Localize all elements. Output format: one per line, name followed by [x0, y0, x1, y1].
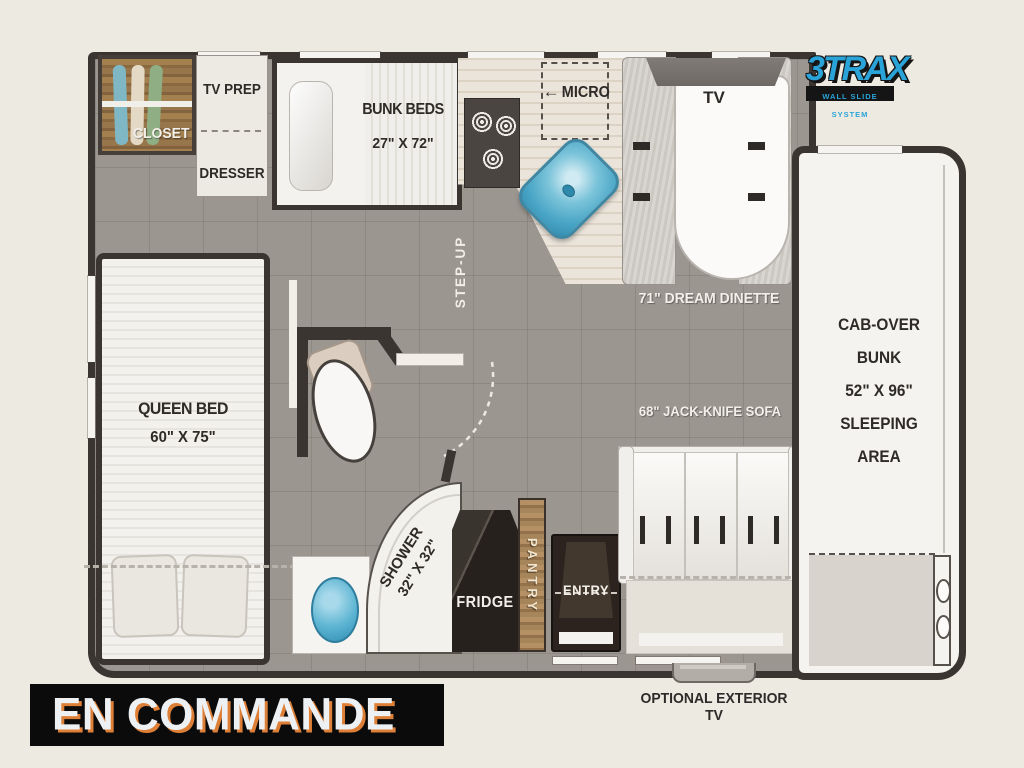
tv-prep-label: TV PREP: [186, 82, 279, 98]
pantry-label: PANTRY: [518, 499, 546, 653]
seat-belt-icon: [748, 142, 765, 150]
seat-belt-icon: [633, 142, 650, 150]
cab-body: CAB-OVER BUNK 52" X 96" SLEEPING AREA: [792, 146, 966, 680]
step-oval-icon: [936, 615, 951, 639]
exterior-tv-mount: [672, 663, 756, 683]
sink-drain-icon: [560, 182, 578, 200]
bedroom-tv-wall: [289, 280, 297, 408]
micro-label: MICRO: [561, 84, 609, 102]
closet: CLOSET: [98, 55, 196, 155]
slide-out-line: [620, 576, 800, 579]
micro-arrow-icon: ←: [543, 82, 560, 101]
seat-belt-icon: [666, 516, 671, 544]
step-up-label: STEP-UP: [453, 207, 473, 337]
seat-belt-icon: [748, 193, 765, 201]
window-gap: [88, 378, 95, 438]
stove: [464, 98, 520, 188]
status-banner: EN COMMANDE: [30, 684, 444, 746]
fridge: FRIDGE: [452, 510, 518, 652]
entry-step: ENTRY: [551, 534, 621, 652]
cab-over-line: 52" X 96": [814, 375, 944, 408]
entry-step-tread: [559, 632, 613, 644]
logo-3trax: 3TRAX WALL SLIDE SYSTEM: [806, 50, 902, 101]
dresser-divider: [201, 130, 261, 132]
sofa-slide-footprint: [626, 580, 796, 654]
cab-over-line: SLEEPING: [814, 408, 944, 441]
logo-subtitle-band: WALL SLIDE SYSTEM: [806, 86, 894, 101]
entry-inner: [559, 542, 613, 618]
sofa-cushion: [685, 452, 737, 580]
window-gap: [468, 52, 544, 59]
seat-belt-icon: [633, 193, 650, 201]
dresser-unit: TV PREP DRESSER: [196, 55, 268, 197]
entry-label: ENTRY: [540, 582, 633, 598]
microwave-zone: ←MICRO: [541, 62, 609, 140]
sofa-armrest: [618, 446, 634, 584]
pillow-icon: [289, 81, 333, 191]
status-banner-label: EN COMMANDE: [30, 683, 444, 747]
cab-over-line: AREA: [814, 441, 944, 474]
tv-icon: [646, 58, 786, 86]
exterior-tv-label: OPTIONAL EXTERIOR TV: [634, 690, 794, 724]
pantry: PANTRY: [518, 498, 546, 652]
dresser-label: DRESSER: [186, 166, 279, 182]
seat-belt-icon: [640, 516, 645, 544]
door-swing-arc: [432, 350, 502, 465]
exterior-tv-mount-band: [680, 665, 746, 669]
burner-icon: [470, 110, 494, 134]
seat-belt-icon: [720, 516, 725, 544]
bunk-bed-size: 27" X 72": [351, 135, 455, 152]
cab-step-strip: [933, 555, 951, 666]
step-oval-icon: [936, 579, 951, 603]
bunk-bed: BUNK BEDS 27" X 72": [272, 58, 462, 210]
sofa-slide-band: [639, 633, 783, 646]
bath-vanity: [292, 556, 370, 654]
floorplan-canvas: QUEEN BED 60" X 75" CLOSET TV PREP DRESS…: [0, 0, 1024, 768]
tv-label: TV: [684, 88, 744, 108]
cab-over-line: BUNK: [814, 342, 944, 375]
cab-label-stack: CAB-OVER BUNK 52" X 96" SLEEPING AREA: [809, 309, 949, 474]
seat-belt-icon: [774, 516, 779, 544]
window-gap: [818, 146, 902, 153]
logo-title: 3TRAX: [806, 50, 902, 88]
bath-sink-icon: [311, 577, 359, 643]
bunk-mattress: [365, 63, 457, 205]
queen-bed-label: QUEEN BED: [108, 399, 259, 419]
bathroom-wall: [297, 330, 308, 457]
seat-belt-icon: [748, 516, 753, 544]
queen-bed-size: 60" X 75": [108, 429, 259, 447]
seat-belt-icon: [694, 516, 699, 544]
closet-rod: [102, 101, 192, 107]
sofa-cushion: [737, 452, 789, 580]
queen-bed: QUEEN BED 60" X 75": [96, 253, 270, 665]
cab-step-area: [809, 555, 933, 666]
window-gap: [88, 276, 95, 362]
sofa-label: 68" JACK-KNIFE SOFA: [624, 403, 795, 419]
bunk-bed-label: BUNK BEDS: [351, 101, 455, 119]
burner-icon: [481, 147, 505, 171]
entry-door-gap: [553, 657, 617, 664]
cab-over-line: CAB-OVER: [814, 309, 944, 342]
logo-subtitle: WALL SLIDE SYSTEM: [822, 92, 877, 119]
dinette-bench: [622, 57, 676, 285]
slide-out-line: [84, 565, 296, 568]
fridge-label: FRIDGE: [454, 594, 515, 612]
closet-label: CLOSET: [123, 125, 190, 142]
dinette-label: 71" DREAM DINETTE: [630, 290, 788, 307]
burner-icon: [494, 114, 518, 138]
micro-label-group: ←MICRO: [529, 82, 625, 102]
